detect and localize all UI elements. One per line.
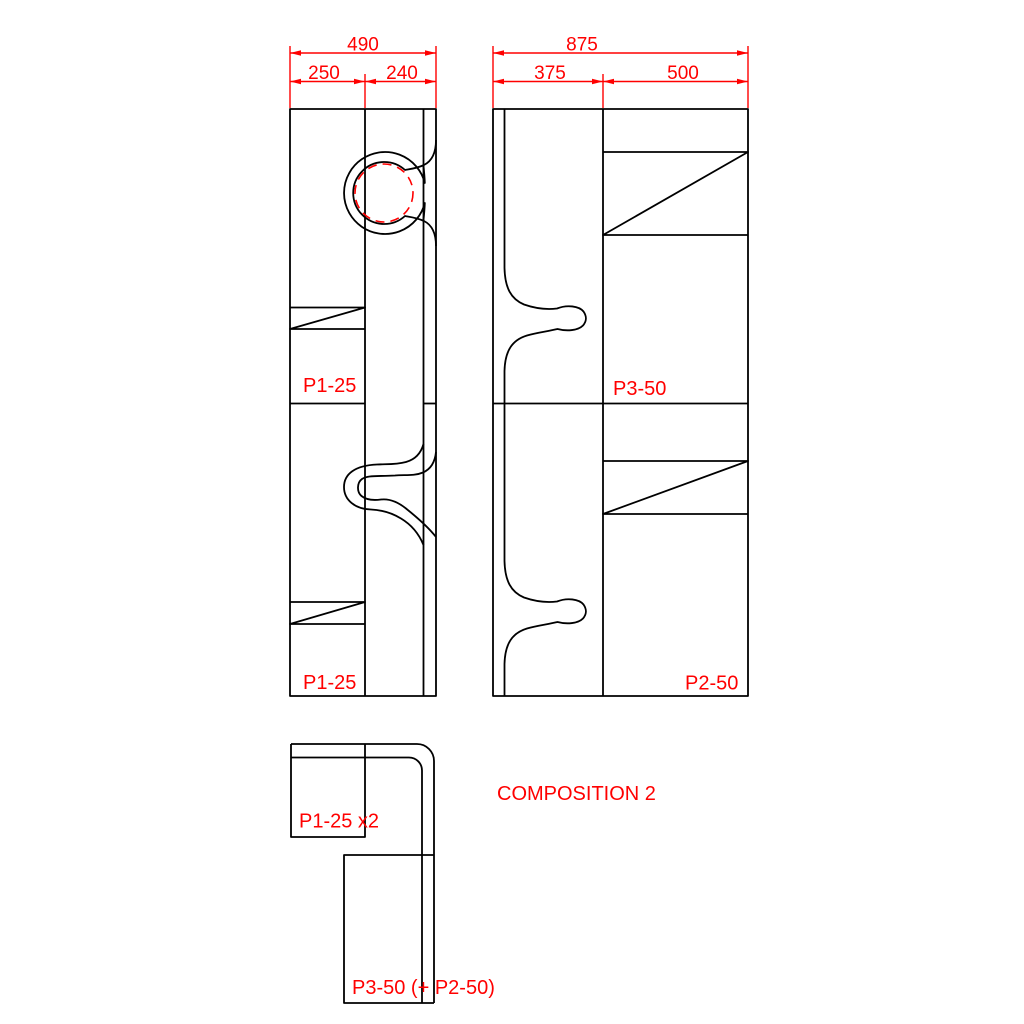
side-lower-zigzag-mark bbox=[603, 461, 748, 514]
label-composition-panels: P1-25 x2 bbox=[299, 811, 379, 833]
drawing-canvas: 490 250 240 875 375 500 P1-25 P1-25 P3-5… bbox=[0, 0, 1024, 1024]
arrowhead bbox=[493, 50, 504, 55]
label-side-lower-panel: P2-50 bbox=[685, 673, 738, 695]
label-side-upper-panel: P3-50 bbox=[613, 378, 666, 400]
composition-band-outer bbox=[291, 744, 434, 1003]
side-view-dimensions bbox=[493, 46, 748, 108]
arrowhead bbox=[290, 79, 301, 84]
arrowhead bbox=[425, 50, 436, 55]
label-composition-back: P3-50 (+ P2-50) bbox=[352, 977, 495, 999]
composition-band-inner bbox=[291, 758, 422, 1004]
side-lower-tab-profile bbox=[505, 561, 586, 664]
arrowhead bbox=[603, 79, 614, 84]
dim-front-overall: 490 bbox=[347, 35, 379, 56]
side-upper-zigzag-mark bbox=[603, 152, 748, 235]
dim-side-overall: 875 bbox=[566, 35, 598, 56]
front-upper-zigzag-mark bbox=[290, 308, 365, 330]
dim-front-left: 250 bbox=[308, 63, 340, 84]
label-front-lower-panel: P1-25 bbox=[303, 672, 356, 694]
arrowhead bbox=[365, 79, 376, 84]
front-panel-outline bbox=[290, 109, 436, 696]
front-hook-outer-curve bbox=[344, 444, 424, 545]
front-lower-zigzag-mark bbox=[290, 602, 365, 624]
arrowhead bbox=[592, 79, 603, 84]
cad-technical-drawing: 490 250 240 875 375 500 P1-25 P1-25 P3-5… bbox=[0, 0, 1024, 1024]
side-upper-tab-profile bbox=[505, 268, 586, 371]
arrowhead bbox=[493, 79, 504, 84]
composition-view-outline bbox=[291, 744, 434, 1003]
dowel-dashed-circle bbox=[355, 164, 413, 222]
arrowhead bbox=[737, 79, 748, 84]
dim-side-left: 375 bbox=[534, 63, 566, 84]
side-panel-outline bbox=[493, 109, 748, 696]
dim-side-right: 500 bbox=[667, 63, 699, 84]
dim-front-right: 240 bbox=[386, 63, 418, 84]
arrowhead bbox=[354, 79, 365, 84]
label-front-upper-panel: P1-25 bbox=[303, 375, 356, 397]
arrowhead bbox=[425, 79, 436, 84]
outline-geometry bbox=[290, 109, 748, 1003]
arrowhead bbox=[737, 50, 748, 55]
front-view-outline bbox=[290, 109, 436, 696]
side-view-outline bbox=[493, 109, 748, 696]
arrowhead bbox=[290, 50, 301, 55]
drawing-caption: COMPOSITION 2 bbox=[497, 783, 656, 805]
